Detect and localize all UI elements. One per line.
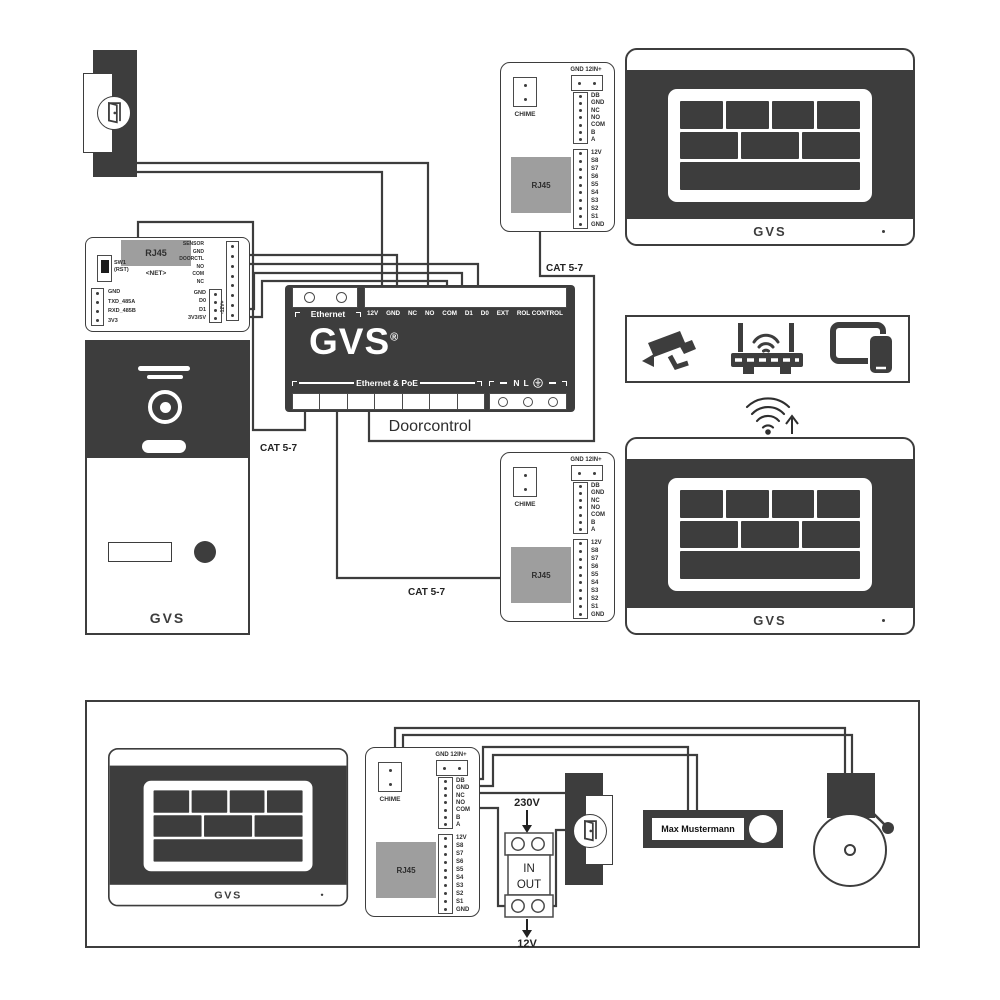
rj45-port[interactable]: RJ45	[511, 547, 571, 603]
mic-slot	[142, 440, 186, 453]
terminal-strip-top[interactable]	[364, 287, 567, 308]
menu-tile[interactable]	[741, 521, 799, 549]
menu-tile[interactable]	[802, 521, 860, 549]
rs485-connector	[91, 288, 104, 326]
bus-connector[interactable]	[573, 92, 588, 144]
menu-tile[interactable]	[680, 101, 723, 129]
menu-tile[interactable]	[680, 551, 860, 579]
router-icon	[729, 321, 805, 377]
cable-label-cat57-2: CAT 5-7	[546, 263, 583, 274]
menu-tile[interactable]	[817, 490, 860, 518]
bell-striker	[882, 822, 894, 834]
power-supply-unit: 230V IN OUT 12V	[495, 795, 565, 947]
bell	[808, 768, 908, 893]
psu-input-terminal[interactable]	[532, 838, 544, 850]
camera-lens	[148, 390, 182, 424]
psu-input-terminal[interactable]	[512, 838, 524, 850]
network-devices-box	[625, 315, 910, 383]
wiring-diagram-canvas: CAT 5-7 CAT 5-7 CAT 5-7 RJ45 <NET> SW1 (…	[0, 0, 1000, 1000]
menu-tile[interactable]	[255, 815, 303, 837]
chime-connector[interactable]	[513, 467, 537, 497]
menu-tile[interactable]	[154, 839, 303, 861]
switch-connector[interactable]	[573, 149, 588, 229]
switch-pin-labels: 12VS8S7S6S5S4S3S2S1GND	[591, 149, 604, 229]
io-pin-labels: SENSORGNDDOORCTLNOCOMNC	[156, 241, 204, 286]
psu-output-terminal[interactable]	[512, 900, 524, 912]
menu-tile[interactable]	[817, 101, 860, 129]
bus-pin-labels: DBGNDNCNOCOMBA	[456, 777, 470, 829]
nameplate-field: Max Mustermann	[652, 818, 744, 840]
monitor-screen[interactable]	[110, 766, 347, 885]
call-button[interactable]	[194, 541, 216, 563]
menu-tile[interactable]	[802, 132, 860, 160]
psu-output-terminal[interactable]	[532, 900, 544, 912]
power-label: GND 12IN+	[424, 752, 478, 759]
bus-connector[interactable]	[438, 777, 453, 829]
cable-label-cat57-1: CAT 5-7	[260, 443, 297, 454]
menu-tile[interactable]	[680, 490, 723, 518]
monitor-mic-dot	[882, 230, 885, 233]
power-label: GND 12IN+	[559, 67, 613, 74]
menu-tile[interactable]	[191, 790, 226, 812]
menu-tile[interactable]	[726, 490, 769, 518]
name-plate-field	[108, 542, 172, 562]
psu-out-label: OUT	[517, 879, 541, 891]
speaker-slot-2	[147, 375, 183, 379]
rst-label: (RST)	[114, 267, 129, 273]
door-lock-top	[80, 48, 160, 180]
door-station-camera-panel	[87, 342, 248, 458]
menu-tile[interactable]	[726, 101, 769, 129]
tablet-phone-icon	[830, 322, 896, 376]
menu-tile[interactable]	[680, 521, 738, 549]
door-lock-bottom	[560, 770, 630, 890]
menu-tile[interactable]	[154, 790, 189, 812]
power-connector[interactable]	[571, 465, 603, 481]
ethernet-label: Ethernet	[295, 309, 361, 319]
speaker-slot-1	[138, 366, 190, 371]
rj45-port[interactable]: RJ45	[376, 842, 436, 898]
chime-label: CHIME	[503, 501, 547, 508]
power-label-vertical: -12V+	[221, 290, 227, 324]
doorbell-button[interactable]	[749, 815, 777, 843]
doorbell-nameplate: Max Mustermann	[643, 810, 783, 848]
bus-pin-labels: DBGNDNCNOCOMBA	[591, 482, 605, 534]
switch-pin-labels: 12VS8S7S6S5S4S3S2S1GND	[591, 539, 604, 619]
monitor-logo: GVS	[627, 608, 913, 633]
switch-pin-labels: 12VS8S7S6S5S4S3S2S1GND	[456, 834, 469, 914]
power-label: GND 12IN+	[559, 457, 613, 464]
earth-icon	[533, 378, 543, 388]
menu-tile[interactable]	[154, 815, 202, 837]
switch-connector[interactable]	[438, 834, 453, 914]
menu-tile[interactable]	[267, 790, 302, 812]
mains-terminal[interactable]	[489, 393, 567, 410]
chime-label: CHIME	[503, 111, 547, 118]
indoor-monitor-3: GVS	[108, 748, 348, 906]
poe-port-strip[interactable]	[292, 393, 485, 410]
sw1-label: SW1	[114, 260, 126, 266]
chime-module-middle: CHIME GND 12IN+ DBGNDNCNOCOMBA 12VS8S7S6…	[500, 452, 615, 622]
door-station: GVS	[85, 340, 250, 635]
screen-tile-menu	[668, 89, 872, 202]
menu-tile[interactable]	[772, 101, 815, 129]
psu-input-label: 230V	[514, 797, 540, 809]
monitor-logo: GVS	[627, 219, 913, 244]
menu-tile[interactable]	[229, 790, 264, 812]
bus-pin-labels: GNDD0D13V3/5V	[164, 289, 206, 323]
rs485-pin-labels: GNDTXD_485ARXD_485B3V3	[108, 288, 136, 326]
doorcontrol-unit: Ethernet 12VGNDNCNOCOMD1D0EXTROL CONTROL…	[285, 285, 575, 412]
monitor-logo: GVS	[110, 885, 347, 905]
bus-pin-labels: DBGNDNCNOCOMBA	[591, 92, 605, 144]
monitor-mic-dot	[882, 619, 885, 622]
psu-in-label: IN	[523, 863, 535, 875]
power-connector[interactable]	[436, 760, 468, 776]
menu-tile[interactable]	[204, 815, 252, 837]
menu-tile[interactable]	[772, 490, 815, 518]
lock-door-symbol	[97, 96, 131, 130]
menu-tile[interactable]	[680, 162, 860, 190]
menu-tile[interactable]	[741, 132, 799, 160]
terminal-labels: 12VGNDNCNOCOMD1D0EXTROL CONTROL	[367, 310, 563, 317]
screen-tile-menu	[668, 478, 872, 591]
monitor-screen[interactable]	[627, 70, 913, 219]
chime-module-bottom: CHIME GND 12IN+ DBGNDNCNOCOMBA 12VS8S7S6…	[365, 747, 480, 917]
doorcontrol-title: Doorcontrol	[285, 418, 575, 436]
bus-connector[interactable]	[573, 482, 588, 534]
chime-connector[interactable]	[513, 77, 537, 107]
cctv-camera-icon	[640, 325, 704, 373]
monitor-mic-dot	[321, 894, 323, 896]
indoor-monitor-1: GVS	[625, 48, 915, 246]
doorcontrol-logo: GVS®	[309, 323, 399, 360]
switch-connector[interactable]	[573, 539, 588, 619]
mains-l-label: L	[523, 378, 528, 388]
wifi-signal-icon	[742, 388, 804, 436]
lock-door-symbol	[573, 814, 607, 848]
mains-n-label: N	[513, 378, 519, 388]
chime-module-top: CHIME GND 12IN+ DBGNDNCNOCOMBA 12VS8S7S6…	[500, 62, 615, 232]
tick-icon	[356, 312, 361, 317]
rj45-port[interactable]: RJ45	[511, 157, 571, 213]
cable-label-cat57-3: CAT 5-7	[408, 587, 445, 598]
power-connector[interactable]	[571, 75, 603, 91]
screen-tile-menu	[144, 781, 313, 871]
mains-bracket: N L	[489, 378, 567, 388]
door-icon	[100, 97, 129, 126]
reset-switch[interactable]	[97, 255, 112, 282]
poe-bracket: Ethernet & PoE	[292, 378, 482, 388]
monitor-screen[interactable]	[627, 459, 913, 608]
psu-output-label: 12V	[517, 938, 537, 947]
network-interface-module: RJ45 <NET> SW1 (RST) GNDTXD_485ARXD_485B…	[85, 237, 250, 332]
door-station-logo: GVS	[87, 610, 248, 626]
io-connector	[226, 241, 239, 321]
chime-label: CHIME	[368, 796, 412, 803]
menu-tile[interactable]	[680, 132, 738, 160]
chime-connector[interactable]	[378, 762, 402, 792]
registered-mark: ®	[390, 332, 399, 344]
ethernet-ports[interactable]	[292, 287, 358, 308]
door-icon	[576, 815, 605, 844]
indoor-monitor-2: GVS	[625, 437, 915, 635]
